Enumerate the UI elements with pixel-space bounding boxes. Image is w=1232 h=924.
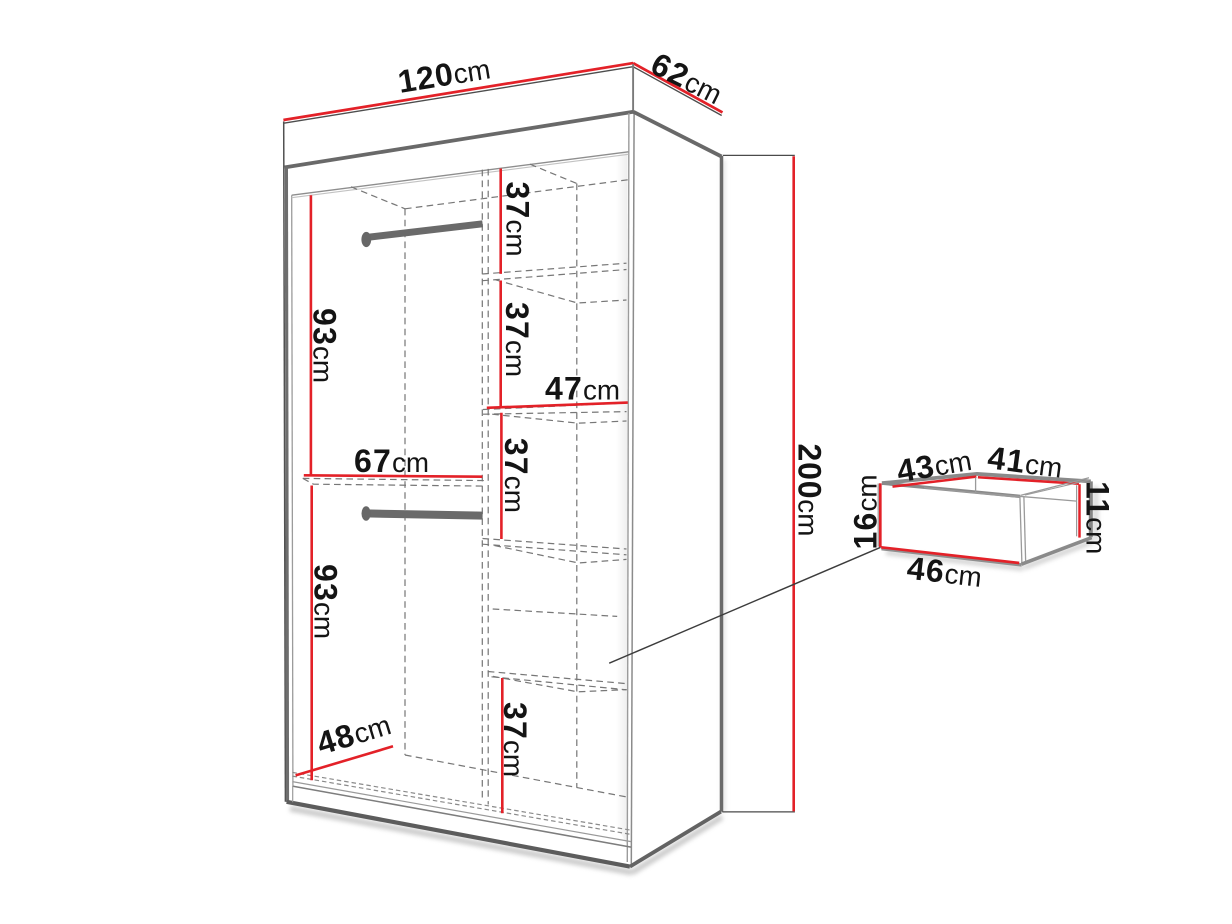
svg-text:37cm: 37cm	[500, 182, 536, 257]
svg-text:11cm: 11cm	[1080, 481, 1116, 554]
svg-text:37cm: 37cm	[498, 438, 534, 513]
svg-text:93cm: 93cm	[308, 564, 344, 639]
svg-text:47cm: 47cm	[545, 371, 620, 407]
svg-text:67cm: 67cm	[354, 443, 429, 479]
svg-text:16cm: 16cm	[848, 474, 884, 549]
svg-text:37cm: 37cm	[499, 302, 535, 377]
svg-text:37cm: 37cm	[497, 702, 533, 777]
svg-text:93cm: 93cm	[307, 308, 343, 383]
svg-text:200cm: 200cm	[792, 444, 828, 537]
